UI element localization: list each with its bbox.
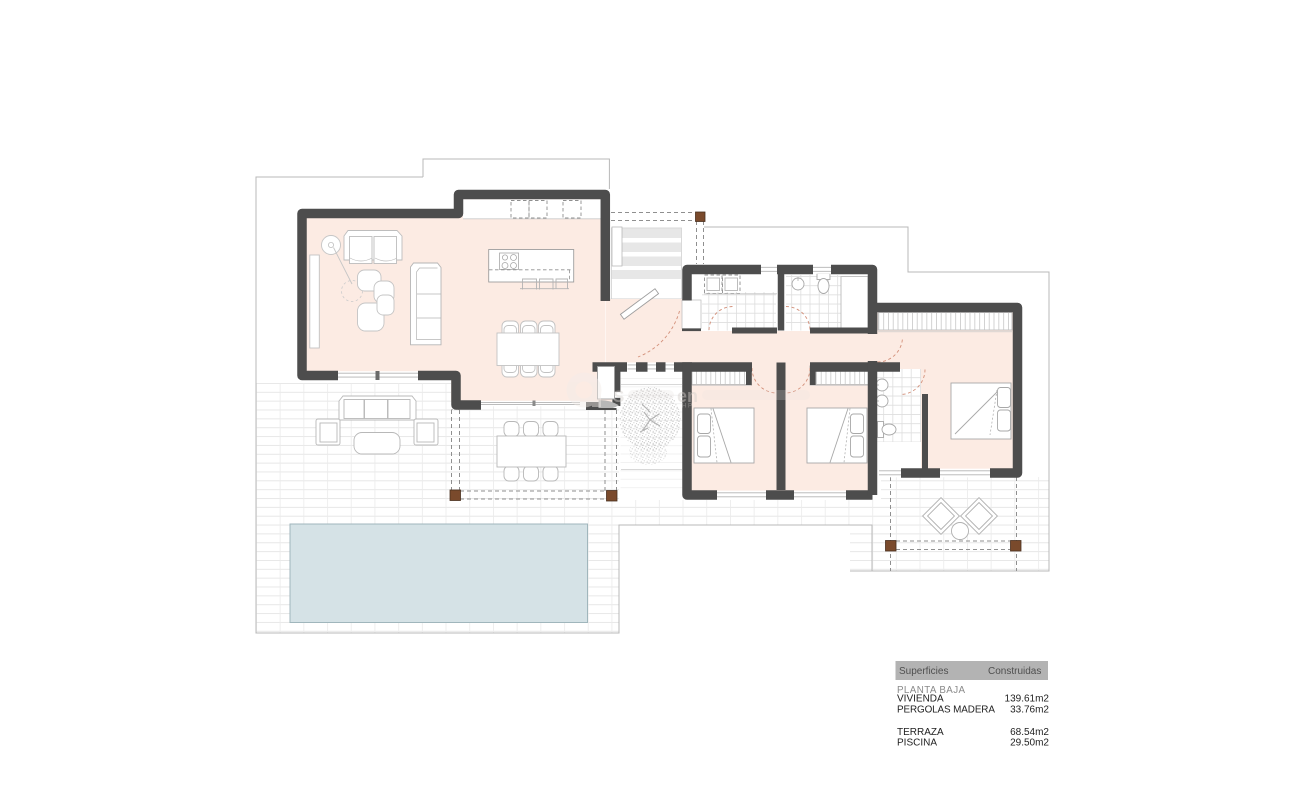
svg-text:139.61m2: 139.61m2	[1005, 694, 1050, 705]
svg-text:33.76m2: 33.76m2	[1010, 704, 1049, 715]
svg-text:Superficies: Superficies	[899, 666, 948, 677]
svg-text:Construidas: Construidas	[988, 666, 1041, 677]
svg-text:PERGOLAS MADERA: PERGOLAS MADERA	[897, 704, 995, 715]
svg-text:S: S	[613, 387, 624, 406]
svg-text:PISCINA: PISCINA	[897, 737, 937, 748]
svg-text:H P: H P	[682, 404, 692, 410]
svg-text:VIVIENDA: VIVIENDA	[897, 694, 944, 705]
svg-text:29.50m2: 29.50m2	[1010, 737, 1049, 748]
